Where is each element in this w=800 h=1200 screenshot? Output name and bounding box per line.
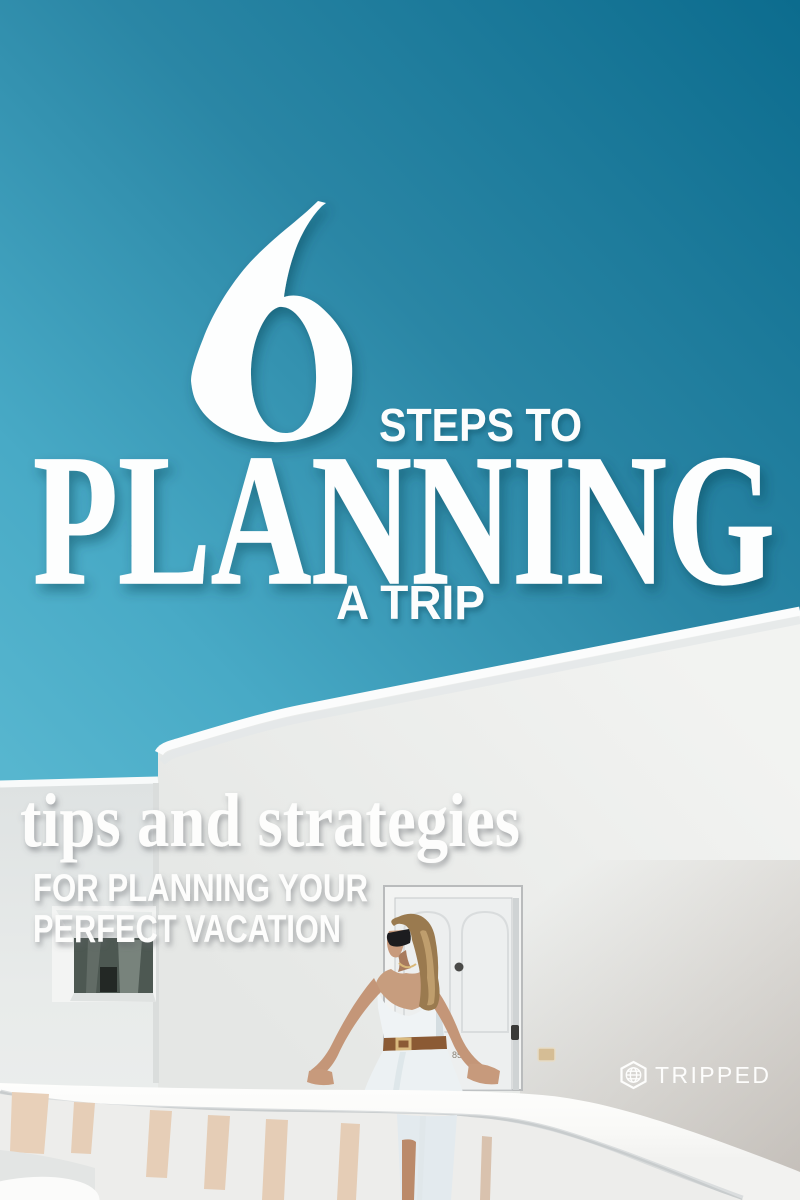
svg-text:TRIPPED: TRIPPED xyxy=(655,1062,773,1088)
svg-text:FOR PLANNING YOUR: FOR PLANNING YOUR xyxy=(33,867,368,910)
svg-text:A TRIP: A TRIP xyxy=(336,577,485,630)
svg-text:PERFECT VACATION: PERFECT VACATION xyxy=(33,908,341,951)
svg-text:tips and strategies: tips and strategies xyxy=(20,779,520,863)
